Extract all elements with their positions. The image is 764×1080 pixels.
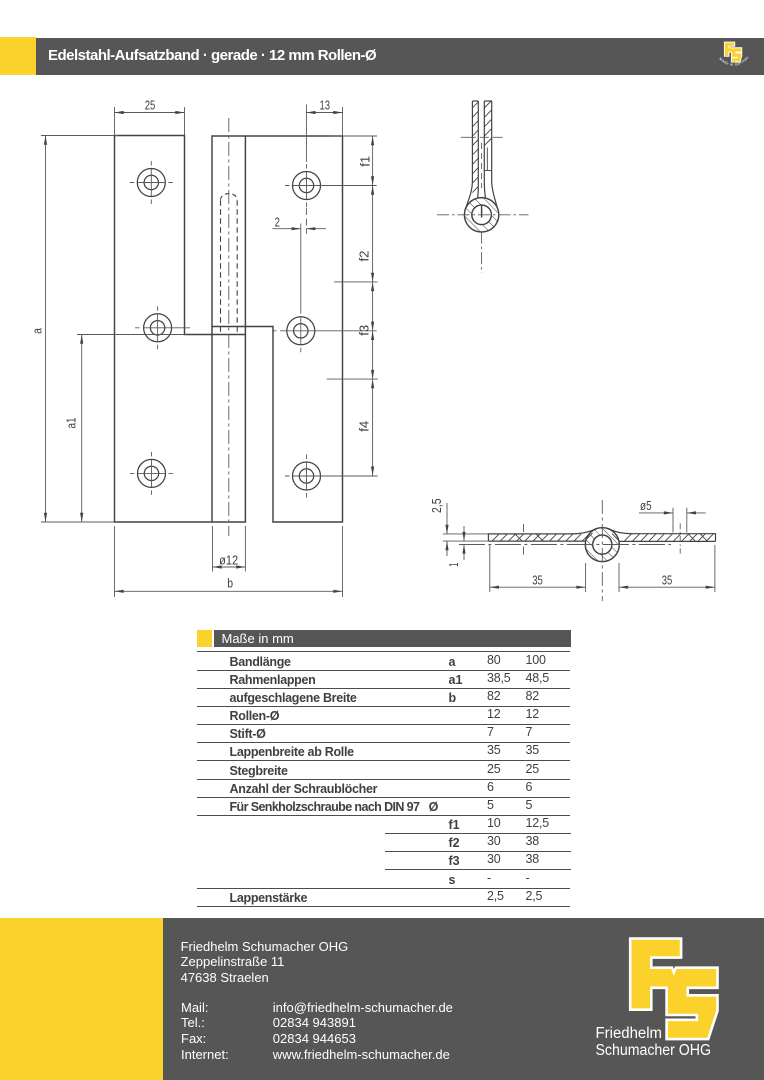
svg-text:b: b — [227, 576, 233, 591]
svg-text:13: 13 — [319, 98, 330, 113]
svg-text:2: 2 — [275, 214, 280, 229]
svg-text:25: 25 — [145, 98, 156, 113]
svg-text:a1: a1 — [63, 418, 78, 429]
svg-text:35: 35 — [532, 572, 543, 587]
svg-text:a: a — [29, 327, 44, 334]
svg-text:f4: f4 — [356, 421, 371, 432]
svg-text:f2: f2 — [356, 251, 371, 262]
svg-text:Friedhelm: Friedhelm — [596, 1025, 663, 1042]
svg-text:Schumacher OHG: Schumacher OHG — [596, 1042, 712, 1059]
svg-text:ø12: ø12 — [219, 553, 238, 568]
svg-text:2,5: 2,5 — [429, 498, 444, 513]
svg-text:35: 35 — [662, 572, 673, 587]
svg-text:ø5: ø5 — [640, 498, 652, 513]
svg-text:1: 1 — [446, 563, 461, 567]
svg-text:f1: f1 — [358, 156, 373, 167]
svg-text:f3: f3 — [357, 325, 372, 336]
